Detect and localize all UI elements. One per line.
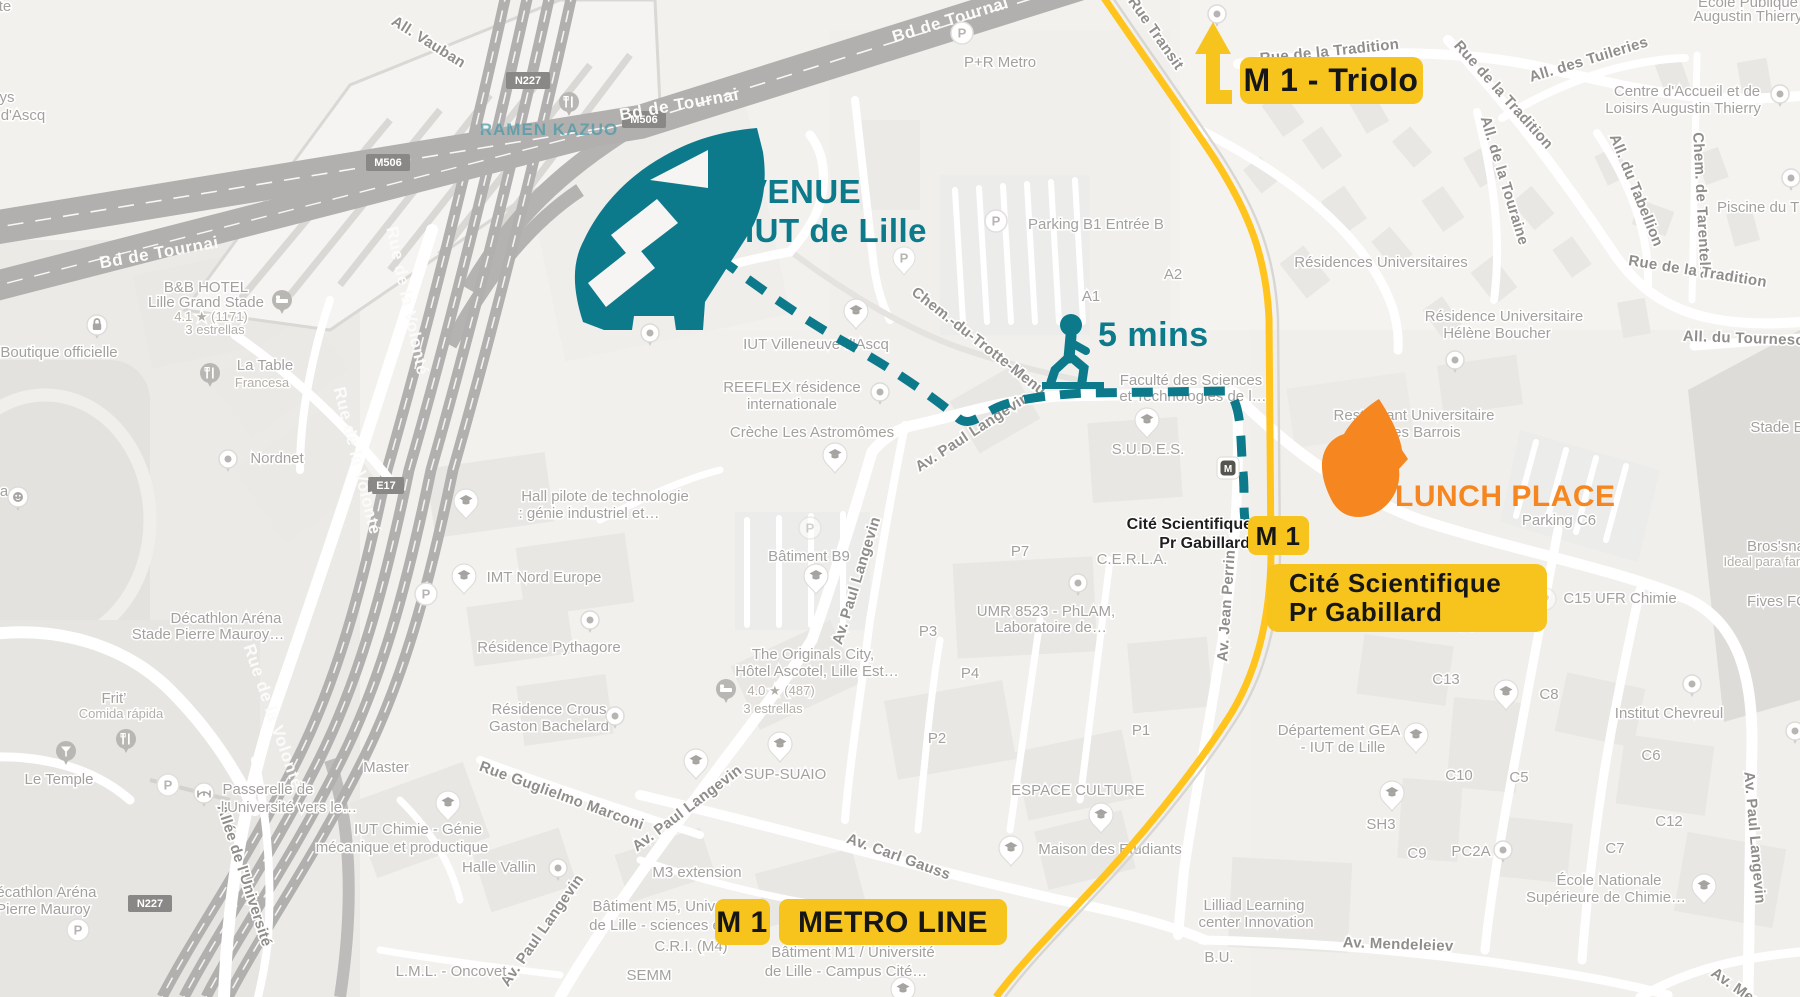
poi-label: PC2A <box>1451 843 1490 860</box>
poi-label: REEFLEX résidence <box>723 379 861 396</box>
poi-label: M3 extension <box>652 864 741 881</box>
poi-label: Résidence Crous <box>491 701 606 718</box>
venue-label-line2: IUT de Lille <box>745 212 927 249</box>
poi-label: Crèche Les Astromômes <box>730 424 894 441</box>
poi-label: The Originals City, <box>752 646 874 663</box>
poi-label: 3 estrellas <box>185 322 245 337</box>
poi-label: mécanique et productique <box>316 839 489 856</box>
lunch-place-label: LUNCH PLACE <box>1395 480 1616 513</box>
poi-label: Hélène Boucher <box>1443 325 1551 342</box>
poi-label: Passerelle de <box>223 781 314 798</box>
poi-label: Parking B1 Entrée B <box>1028 216 1164 233</box>
poi-label: Comida rápida <box>79 706 164 721</box>
station-map-label-line1: Cité Scientifique <box>1127 516 1252 533</box>
poi-label: ys <box>0 89 15 106</box>
poi-label: ESPACE CULTURE <box>1011 782 1145 799</box>
poi-label: C10 <box>1445 767 1473 784</box>
poi-label: Lilliad Learning <box>1204 897 1305 914</box>
poi-label: C9 <box>1407 845 1426 862</box>
poi-label: Loisirs Augustin Thierry <box>1605 100 1761 117</box>
station-name-badge: Cité Scientifique Pr Gabillard <box>1267 564 1547 632</box>
poi-label: Laboratoire de… <box>995 619 1107 636</box>
poi-label: Frit’ <box>102 690 127 707</box>
parking-icon[interactable] <box>799 517 821 539</box>
poi-label: 3 estrellas <box>743 701 803 716</box>
shield-label: E17 <box>376 480 396 492</box>
poi-label: Hôtel Ascotel, Lille Est… <box>735 663 898 680</box>
poi-label: Hall pilote de technologie <box>521 488 689 505</box>
poi-label: S.U.D.E.S. <box>1112 441 1185 458</box>
poi-label: P7 <box>1011 543 1029 560</box>
poi-label: l'Université vers le… <box>221 799 357 816</box>
triolo-station-badge: M 1 - Triolo <box>1240 57 1423 104</box>
poi-label: P4 <box>961 665 979 682</box>
poi-label: IUT Villeneuve d'Ascq <box>743 336 889 353</box>
poi-label: La Table <box>237 357 293 374</box>
poi-label: Boutique officielle <box>0 344 117 361</box>
poi-label: École Nationale <box>1556 872 1661 889</box>
shield-label: N227 <box>515 75 541 87</box>
education-pin-icon[interactable] <box>891 977 915 997</box>
triolo-badge-label: M 1 - Triolo <box>1244 62 1419 98</box>
poi-label: Parking C6 <box>1522 512 1596 529</box>
poi-label: P3 <box>919 623 937 640</box>
poi-label: Résidence Universitaire <box>1425 308 1583 325</box>
poi-label: Institut Chevreul <box>1615 705 1723 722</box>
poi-label: RAMEN KAZUO <box>480 120 619 139</box>
poi-label: L.M.L. - Oncovet <box>396 963 508 980</box>
poi-label: A1 <box>1082 288 1100 305</box>
poi-label: Maison des Etudiants <box>1038 841 1181 858</box>
shield-label: M506 <box>374 157 402 169</box>
poi-label: C12 <box>1655 813 1683 830</box>
poi-label: Ideal para famil <box>1724 554 1800 569</box>
poi-label: Bâtiment B9 <box>768 548 850 565</box>
poi-label: Master <box>363 759 409 776</box>
poi-label: 4.0 ★ (487) <box>747 683 814 698</box>
walk-time-label: 5 mins <box>1098 316 1209 354</box>
poi-label: Résidence Pythagore <box>477 639 620 656</box>
station-name-line1: Cité Scientifique <box>1289 568 1501 598</box>
poi-label: Piscine du T <box>1717 199 1799 216</box>
m1-station-badge-label: M 1 <box>1256 521 1301 551</box>
poi-label: te <box>0 0 11 15</box>
legend-m1-label: M 1 <box>716 906 768 939</box>
parking-icon[interactable] <box>67 919 89 941</box>
poi-label: P+R Metro <box>964 54 1036 71</box>
poi-label: Le Temple <box>25 771 94 788</box>
poi-label: Augustin Thierry <box>1694 8 1800 25</box>
poi-label: de Lille - sciences e <box>589 917 721 934</box>
poi-label: C6 <box>1641 747 1660 764</box>
poi-label: IUT Chimie - Génie <box>354 821 482 838</box>
poi-label: Faculté des Sciences <box>1120 372 1263 389</box>
station-map-label-line2: Pr Gabillard <box>1159 535 1250 552</box>
m1-station-badge: M 1 <box>1248 516 1309 555</box>
metro-station-icon[interactable] <box>1217 457 1239 479</box>
poi-label: Supérieure de Chimie… <box>1526 889 1686 906</box>
poi-label: A2 <box>1164 266 1182 283</box>
poi-label: Gaston Bachelard <box>489 718 609 735</box>
poi-label: IMT Nord Europe <box>487 569 602 586</box>
poi-label: Décathlon Aréna <box>0 884 97 901</box>
poi-label: C13 <box>1432 671 1460 688</box>
poi-label: Nordnet <box>250 450 304 467</box>
poi-label: Résidences Universitaires <box>1294 254 1467 271</box>
poi-label: d'Ascq <box>1 107 46 124</box>
poi-label: : génie industriel et… <box>519 505 660 522</box>
poi-label: Halle Vallin <box>462 859 536 876</box>
poi-label: SEMM <box>627 967 672 984</box>
poi-label: C5 <box>1509 769 1528 786</box>
shield-label: N227 <box>137 898 163 910</box>
poi-label: e Pierre Mauroy <box>0 901 91 918</box>
poi-label: Bâtiment M1 / Université <box>771 944 934 961</box>
parking-icon[interactable] <box>157 774 179 796</box>
station-name-line2: Pr Gabillard <box>1289 597 1442 627</box>
poi-label: Fives FC <box>1747 593 1800 610</box>
legend-metro-line-label: METRO LINE <box>798 906 988 939</box>
poi-label: C7 <box>1605 840 1624 857</box>
map-canvas[interactable]: P P M <box>0 0 1800 997</box>
poi-label: internationale <box>747 396 837 413</box>
parking-icon[interactable] <box>951 22 973 44</box>
poi-label: C.E.R.L.A. <box>1097 551 1168 568</box>
poi-label: Bâtiment M5, Unive <box>593 898 724 915</box>
poi-label: Stade Pierre Mauroy… <box>132 626 285 643</box>
poi-label: Francesa <box>235 375 290 390</box>
parking-icon[interactable] <box>985 210 1007 232</box>
poi-label: - IUT de Lille <box>1301 739 1386 756</box>
poi-label: Stade E <box>1750 419 1800 436</box>
poi-label: Décathlon Aréna <box>171 610 283 627</box>
poi-label: center Innovation <box>1198 914 1313 931</box>
venue-label-line1: VENUE <box>745 173 861 210</box>
poi-label: C8 <box>1539 686 1558 703</box>
poi-label: B.U. <box>1204 949 1233 966</box>
poi-label: P2 <box>928 730 946 747</box>
poi-label: SH3 <box>1366 816 1395 833</box>
poi-label: Bros'sna <box>1747 538 1800 555</box>
poi-label: SUP-SUAIO <box>744 766 827 783</box>
metro-line-legend: M 1 METRO LINE <box>715 899 1007 945</box>
poi-label: Centre d'Accueil et de <box>1614 83 1760 100</box>
poi-label: Département GEA <box>1278 722 1401 739</box>
poi-label: P1 <box>1132 722 1150 739</box>
poi-label: UMR 8523 - PhLAM, <box>977 603 1115 620</box>
poi-label: C15 UFR Chimie <box>1563 590 1676 607</box>
parking-icon[interactable] <box>415 583 437 605</box>
